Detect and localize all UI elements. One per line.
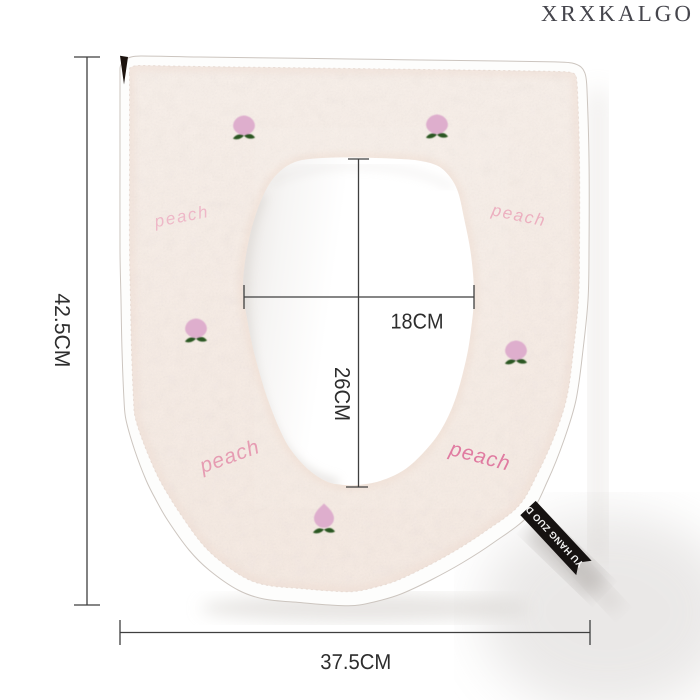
svg-text:18CM: 18CM (391, 310, 444, 334)
svg-text:26CM: 26CM (330, 367, 354, 421)
svg-text:37.5CM: 37.5CM (320, 650, 391, 674)
svg-text:XRXKALGO: XRXKALGO (541, 1, 694, 26)
svg-text:42.5CM: 42.5CM (50, 293, 74, 367)
